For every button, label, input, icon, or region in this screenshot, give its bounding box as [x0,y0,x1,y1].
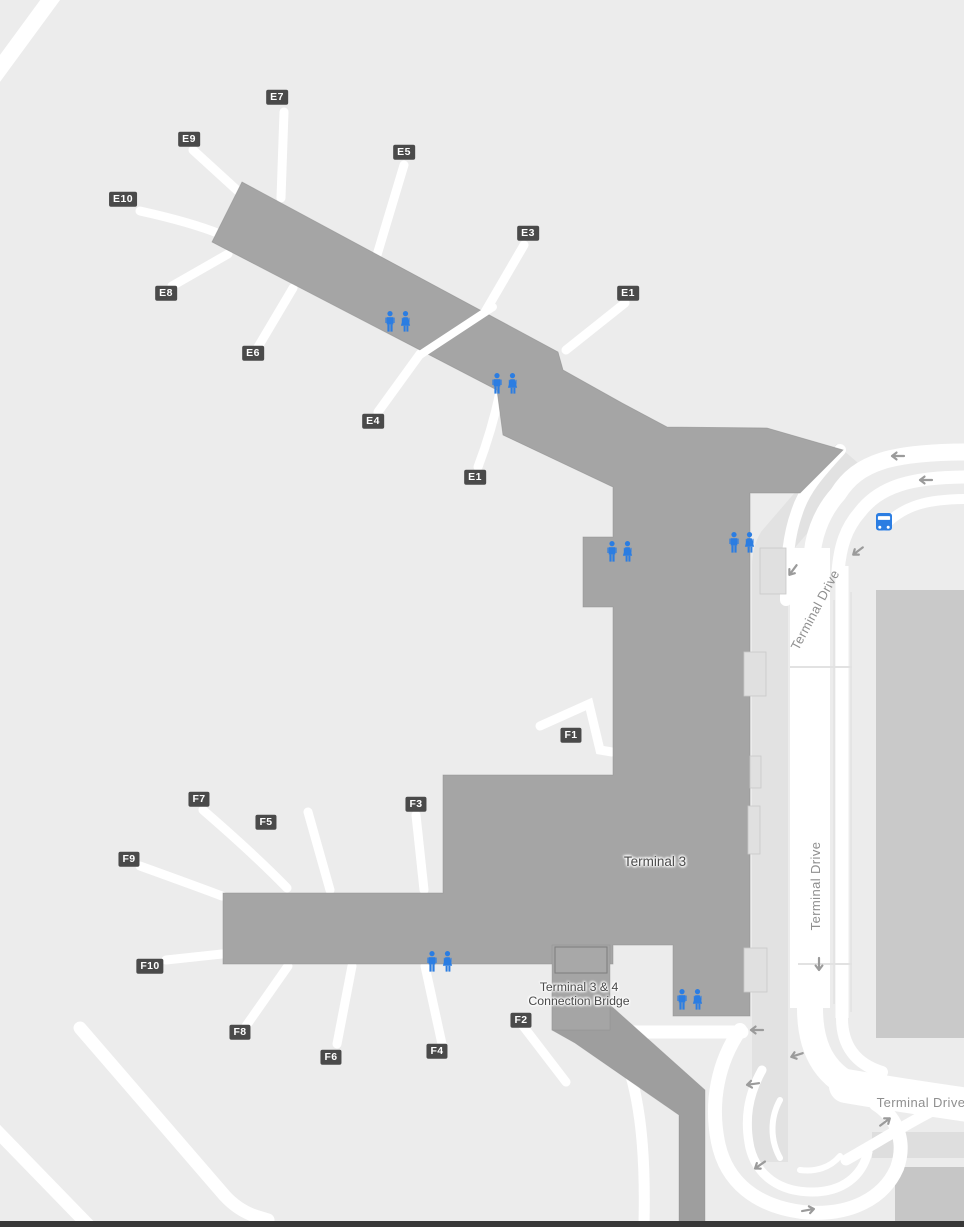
gate-label-e5: E5 [393,145,415,160]
gate-label-f4: F4 [426,1044,447,1059]
airport-terminal-map[interactable]: Terminal DriveTerminal DriveTerminal Dri… [0,0,964,1227]
gate-label-f3: F3 [405,797,426,812]
gate-label-e3: E3 [517,226,539,241]
gate-label-f10: F10 [136,959,163,974]
gate-label-f2: F2 [510,1013,531,1028]
connection-bridge-label-line2: Connection Bridge [528,994,629,1008]
map-bottom-border [0,1221,964,1227]
gate-label-e1: E1 [464,470,486,485]
gate-label-e6: E6 [242,346,264,361]
terminal-3-label: Terminal 3 [624,855,686,869]
poi-icons [876,513,892,531]
gate-label-e10: E10 [109,192,137,207]
gate-label-e1: E1 [617,286,639,301]
gate-label-f6: F6 [320,1050,341,1065]
gate-label-e4: E4 [362,414,384,429]
gate-label-f8: F8 [229,1025,250,1040]
gate-label-f7: F7 [188,792,209,807]
connection-bridge-label: Terminal 3 & 4 Connection Bridge [528,980,629,1008]
gate-label-f1: F1 [560,728,581,743]
bus-stop-icon [876,513,892,531]
gate-label-f5: F5 [255,815,276,830]
road-label-terminal-drive: Terminal Drive [808,842,823,931]
bridge-structure-outline [555,947,607,973]
map-canvas: Terminal DriveTerminal DriveTerminal Dri… [0,0,964,1227]
gate-label-f9: F9 [118,852,139,867]
side-building [895,1167,964,1223]
gate-label-e9: E9 [178,132,200,147]
parking-garage [876,590,964,1038]
road-label-terminal-drive: Terminal Drive [877,1095,964,1110]
gate-label-e8: E8 [155,286,177,301]
connection-bridge-label-line1: Terminal 3 & 4 [528,980,629,994]
gate-label-e7: E7 [266,90,288,105]
